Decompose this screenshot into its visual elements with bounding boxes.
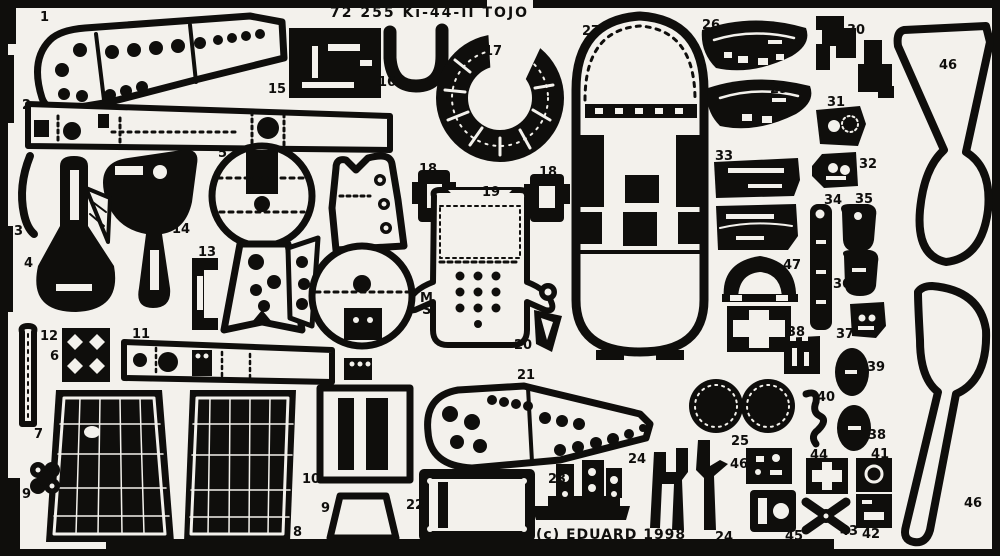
part-shape [257,117,279,139]
part-number-label: 36 [833,277,851,292]
part-shape [76,90,88,102]
part-shape [521,478,527,484]
part-shape [229,398,230,534]
part-shape [992,0,1000,556]
part-shape [826,176,846,180]
part-number-label: 41 [871,447,889,462]
part-shape [758,58,768,65]
part-shape [213,35,223,45]
part-shape [241,31,251,41]
part-number-label: 30 [847,23,865,38]
part-shape [62,328,110,382]
part-shape [816,240,826,244]
part-shape [298,278,310,290]
part-shape [676,135,700,207]
part-shape [412,182,418,204]
part-number-label: 21 [517,368,535,383]
part-shape [296,256,308,268]
part-number-label: 45 [785,529,803,544]
part-number-label: 19 [482,185,500,200]
part-number-label: 24 [628,452,646,467]
part-number-label: 11 [132,327,150,342]
part-shape [464,414,480,430]
part-shape [150,250,159,290]
part-shape [196,354,201,359]
part-shape [816,270,826,274]
sheet-title: 72 255 Ki-44-II TOJO [330,5,529,21]
part-shape [204,354,209,359]
part-shape [741,379,795,433]
part-shape [0,0,16,44]
part-shape [474,320,482,328]
part-shape [864,512,884,520]
part-shape [595,108,603,114]
part-number-label: 31 [827,95,845,110]
part-shape [192,258,218,330]
part-shape [675,108,683,114]
part-number-label: 9 [321,501,330,516]
part-shape [350,362,355,367]
part-shape [258,300,270,312]
part-number-label: 32 [859,157,877,172]
part-shape [328,44,360,51]
part-shape [792,348,797,366]
part-shape [358,362,363,367]
part-number-label: 33 [715,149,733,164]
part-shape [770,470,782,475]
part-shape [776,295,788,301]
part-shape [158,352,178,372]
part-shape [84,426,100,438]
part-shape [572,441,584,453]
part-shape [456,288,465,297]
part-shape [267,275,281,289]
part-shape [390,30,442,86]
part-number-label: 23 [548,472,566,487]
part-shape [104,89,116,101]
part-shape [869,315,876,322]
part-shape [312,46,318,78]
part-number-label: 38 [868,428,886,443]
part-number-label: 8 [293,525,302,540]
part-number-label: 40 [817,390,835,405]
part-shape [0,478,20,556]
part-shape [330,496,396,538]
part-shape [136,81,148,93]
part-shape [738,56,748,63]
part-shape [499,397,509,407]
part-number-label: 12 [40,329,58,344]
part-shape [728,168,784,173]
part-shape [556,415,568,427]
part-shape [367,317,373,323]
part-shape [320,388,410,480]
part-shape [756,456,764,462]
part-number-label: 4 [24,256,33,271]
part-shape [353,275,371,293]
part-number-label: 35 [855,192,873,207]
part-shape [828,120,840,132]
part-shape [862,500,872,504]
part-shape [858,326,874,330]
part-number-label: 39 [867,360,885,375]
part-number-label: 2 [22,98,31,113]
part-shape [427,526,433,532]
part-shape [610,476,618,484]
part-shape [296,298,308,310]
part-shape [772,98,786,102]
part-shape [171,39,185,53]
part-shape [655,108,663,114]
part-shape [98,114,109,128]
part-shape [678,212,700,244]
part-shape [442,406,458,422]
part-shape [816,44,830,70]
part-number-label: 1 [40,10,49,25]
part-number-label: 43 [840,524,858,539]
part-shape [588,468,596,476]
part-shape [625,175,659,203]
part-shape [73,43,87,57]
part-shape [596,350,624,360]
part-number-label: 18 [419,162,437,177]
part-number-label: 13 [198,245,216,260]
part-shape [192,350,212,376]
part-number-label: 42 [862,527,880,542]
part-number-label: 17 [484,44,502,59]
part-number-label: 37 [836,327,854,342]
part-shape [378,178,383,183]
part-shape [492,304,501,313]
part-shape [776,54,784,60]
part-shape [120,85,132,97]
part-shape [762,116,772,123]
part-shape [474,304,483,313]
part-shape [382,202,387,207]
part-number-label: 47 [783,258,801,273]
part-shape [615,108,623,114]
part-shape [127,43,141,57]
part-shape [384,226,389,231]
part-number-label: 6 [50,349,59,364]
part-shape [0,55,14,123]
part-shape [492,288,501,297]
part-shape [824,514,829,519]
part-number-label: 25 [731,434,749,449]
part-shape [854,212,862,220]
part-shape [611,491,617,497]
part-shape [845,370,857,374]
part-number-label: 29 [770,82,788,97]
part-shape [878,86,894,98]
part-number-label: 14 [172,222,190,237]
part-shape [487,395,497,405]
part-shape [562,491,568,497]
part-shape [153,165,167,179]
part-shape [852,268,866,272]
part-shape [302,82,354,88]
part-shape [850,302,886,338]
part-shape [344,358,372,380]
part-shape [184,390,296,542]
part-shape [856,494,892,528]
part-shape [828,163,838,173]
part-shape [105,45,119,59]
part-shape [689,379,743,433]
part-number-label: 5 [218,146,227,161]
part-shape [580,135,604,207]
part-shape [250,284,262,296]
part-shape [360,60,372,66]
part-shape [445,90,465,92]
part-shape [635,108,643,114]
part-shape [255,29,265,39]
part-shape [474,288,483,297]
part-shape [707,79,811,128]
part-shape [70,170,79,220]
part-shape [197,276,203,310]
part-shape [588,484,596,492]
part-shape [34,120,49,137]
part-number-label: 44 [810,448,828,463]
part-shape [474,272,483,281]
part-shape [746,448,792,484]
part-shape [149,41,163,55]
part-shape [714,158,800,198]
part-shape [755,469,761,475]
part-shape [590,437,602,449]
part-shape [456,272,465,281]
part-number-label: 22 [406,498,424,513]
part-shape [428,386,650,468]
part-number-label: 7 [34,427,43,442]
part-number-label: 9 [22,487,31,502]
part-shape [812,470,842,482]
part-shape [473,439,487,453]
part-shape [607,433,619,445]
part-shape [539,186,555,208]
part-number-label: 46 [964,496,982,511]
part-shape [816,210,825,219]
part-number-label: 34 [824,193,842,208]
part-shape [554,444,566,456]
part-shape [58,88,70,100]
part-shape [582,460,604,500]
part-shape [115,166,143,175]
part-number-label: 3 [14,224,23,239]
part-shape [580,212,602,244]
part-shape [840,165,850,175]
part-shape [438,482,448,528]
part-shape [246,150,278,194]
part-shape [816,16,844,30]
part-shape [63,122,81,140]
part-shape [841,204,876,252]
part-shape [532,506,630,520]
part-shape [696,440,728,530]
part-number-label: 20 [514,338,532,353]
part-number-label: 46 [939,58,957,73]
part-shape [772,454,780,462]
part-shape [227,33,237,43]
part-number-label: 16 [378,75,396,90]
part-shape [848,426,861,430]
part-shape [366,398,388,470]
part-shape [194,37,206,49]
part-shape [573,418,585,430]
part-shape [810,204,832,330]
part-shape [511,399,521,409]
part-shape [521,526,527,532]
part-shape [768,40,782,44]
part-shape [450,435,464,449]
part-shape [624,429,634,439]
part-shape [22,156,34,234]
part-shape [55,63,69,77]
part-shape [804,352,809,366]
part-shape [724,52,732,58]
part-shape [730,295,742,301]
part-shape [784,336,820,374]
part-shape [338,398,354,470]
copyright-text: (c) EDUARD 1998 [536,527,686,543]
part-shape [366,362,371,367]
part-shape [539,412,551,424]
part-shape [523,401,533,411]
part-shape [37,470,53,486]
part-shape [639,424,647,432]
part-shape [28,104,390,150]
part-number-label: 24 [715,530,733,545]
part-shape [859,315,866,322]
part-shape [564,184,570,204]
part-number-label: S [422,303,431,318]
part-shape [456,304,465,313]
part-shape [332,156,404,250]
part-number-label: 18 [539,165,557,180]
part-shape [733,320,785,337]
part-shape [0,226,13,312]
part-number-label: 27 [582,24,600,39]
part-shape [50,484,55,489]
part-shape [344,308,382,340]
part-shape [248,254,264,270]
part-number-label: 15 [268,82,286,97]
part-number-label: 10 [302,472,320,487]
part-shape [856,458,892,492]
fret-parts-canvas: 1234567899101112131415161718181920212223… [0,0,1000,556]
part-shape [758,498,767,524]
part-shape [742,114,752,121]
part-shape [56,284,92,291]
part-shape [726,214,774,219]
part-shape [545,289,552,296]
part-shape [427,478,433,484]
pe-fret-sheet: 1234567899101112131415161718181920212223… [0,0,1000,556]
part-shape [38,16,285,110]
part-shape [249,398,250,534]
part-shape [492,272,501,281]
part-shape [773,503,789,519]
part-number-label: 26 [702,18,720,33]
part-shape [133,353,147,367]
part-shape [736,236,764,240]
part-shape [36,468,41,473]
part-shape [836,46,856,58]
part-number-label: 46 [730,457,748,472]
part-shape [623,212,657,246]
part-number-label: 38 [787,325,805,340]
part-shape [656,350,684,360]
part-shape [353,317,359,323]
part-shape [816,300,826,304]
part-shape [748,184,782,188]
part-shape [650,448,688,530]
part-shape [254,196,270,212]
